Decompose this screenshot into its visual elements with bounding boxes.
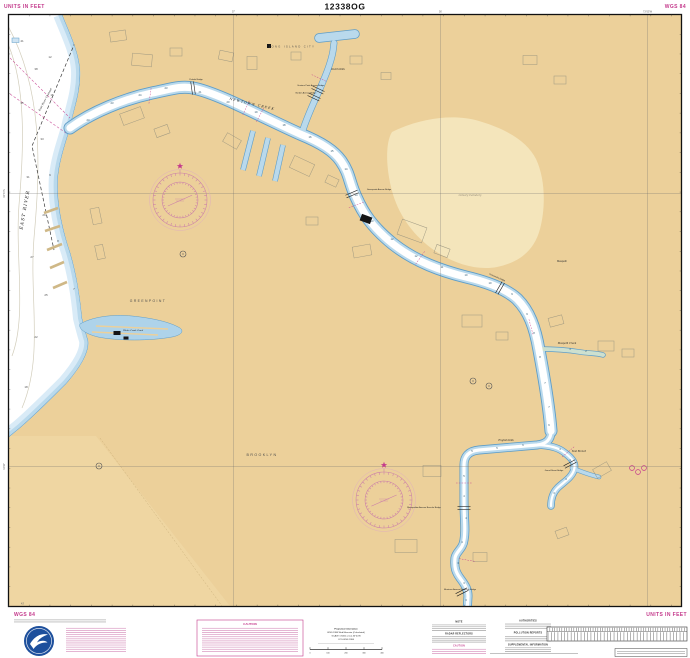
sounding: 10: [489, 281, 492, 285]
sounding: 31: [26, 175, 30, 179]
sounding: 38: [34, 67, 38, 71]
note-header: CAUTION: [453, 645, 465, 648]
map-label: Maspeth Creek: [557, 342, 577, 345]
sounding: 10: [465, 273, 468, 277]
units-note-bottom: UNITS IN FEET: [646, 612, 687, 618]
sounding: 35: [20, 101, 24, 105]
sounding: 15: [331, 149, 334, 153]
sounding: 23: [111, 101, 114, 105]
graticule-label: 56': [439, 10, 443, 13]
note-header: POLLUTION REPORTS: [514, 633, 543, 635]
scale-tick-label: 400: [380, 653, 384, 655]
nautical-chart-12338: 2323242321201918161514141312121110109988…: [0, 0, 690, 658]
datum-label-bottom: WGS 84: [14, 612, 35, 618]
units-note-top: UNITS IN FEET: [4, 4, 45, 10]
map-label: English Kills: [497, 439, 514, 442]
sounding: 24: [139, 93, 142, 97]
sounding: 18: [24, 385, 28, 389]
sounding: 12: [48, 55, 52, 59]
sounding: 12: [391, 237, 394, 241]
map-label: GREENPOINT: [130, 299, 166, 303]
map-label: Dutch Kills: [330, 68, 345, 71]
sounding: 14: [345, 167, 348, 171]
map-label: Whale Creek Canal: [123, 330, 144, 332]
sounding: 16: [309, 135, 312, 139]
sounding: 22: [34, 335, 38, 339]
scale-tick-label: 100: [326, 653, 330, 655]
notes-column-b: AUTHORITIES POLLUTION REPORTS SUPPLEMENT…: [505, 620, 551, 654]
map-label: East Branch: [571, 450, 587, 453]
nautical-chart-page: 2323242321201918161514141312121110109988…: [0, 0, 690, 658]
sounding: 18: [283, 123, 286, 127]
scale-tick-label: 0: [309, 653, 311, 655]
graticule-label: 40°44'N: [3, 189, 6, 198]
sounding: 14: [355, 193, 358, 197]
map-label: Greenpoint Avenue Bridge: [367, 188, 392, 191]
map-label: BROOKLYN: [247, 453, 278, 457]
map-label: Montrose Avenue Retractile Bridge: [444, 588, 477, 591]
note-header: AUTHORITIES: [519, 620, 537, 623]
noaa-logo: [24, 626, 54, 656]
sounding: 27: [30, 255, 34, 259]
sounding: 25: [44, 293, 48, 297]
sounding: 29: [42, 213, 46, 217]
speed-scale-ruler: [547, 627, 687, 641]
caution-title: CAUTION: [243, 622, 257, 626]
graticule-label: 73°55'W: [643, 10, 653, 13]
datum-note-lines: [14, 619, 106, 624]
map-label: Hunters Point Avenue Bridge: [298, 84, 325, 87]
top-margin: UNITS IN FEET 12338OG WGS 84: [4, 2, 686, 12]
caution-box: CAUTION: [197, 620, 303, 656]
corner-lat-label: 43': [21, 603, 25, 606]
map-label: LONG ISLAND CITY: [269, 45, 315, 49]
graticule-label: 43'30": [3, 463, 6, 470]
bottom-margin: WGS 84 UNITS IN FEET CAUTION Projection …: [14, 612, 687, 657]
map-label: Borden Avenue Bridge: [296, 92, 318, 95]
magenta-note-lines: [66, 627, 126, 653]
map-label: Grand Street Bridge: [545, 469, 564, 472]
chart-interior: 2323242321201918161514141312121110109988…: [8, 14, 682, 613]
sounding: 12: [415, 254, 418, 258]
anchorage-mark: [12, 38, 19, 43]
map-label: Calvary Cemetery: [459, 194, 482, 197]
sounding: 23: [87, 118, 90, 122]
title-block-line: SCALE 1:5000 at Lat 40°44'N: [332, 635, 361, 638]
notes-column-a: NOTE RADAR REFLECTORS CAUTION: [432, 622, 486, 655]
sounding: 33: [40, 137, 44, 141]
map-label: Maspeth: [557, 259, 568, 263]
boxed-note: [615, 649, 687, 657]
scale-tick-label: 300: [362, 653, 366, 655]
map-label: Metropolitan Avenue Bascule Bridge: [407, 506, 441, 509]
sounding: 13: [371, 219, 374, 223]
sounding: 41: [20, 39, 24, 43]
datum-label-top: WGS 84: [665, 4, 686, 10]
title-block-line: Projection Information: [334, 628, 358, 631]
title-block-line: CCS WGS 1984: [338, 639, 355, 641]
chart-number: 12338OG: [324, 2, 365, 12]
sounding: 11: [441, 265, 444, 269]
note-header: SUPPLEMENTAL INFORMATION: [508, 644, 548, 647]
note-header: RADAR REFLECTORS: [445, 633, 473, 636]
sounding: 19: [255, 110, 258, 114]
graticule-label: 57': [232, 10, 236, 13]
map-label: Pulaski Bridge: [189, 78, 203, 81]
sounding: 23: [165, 86, 168, 90]
sounding: 21: [199, 90, 202, 94]
fine-print-line: [490, 653, 578, 655]
scale-bar: 0100200300400: [309, 647, 384, 654]
title-block: Projection Information WGS 1984 Web Merc…: [309, 628, 384, 655]
scale-tick-label: 200: [344, 653, 348, 655]
title-block-line: WGS 1984 Web Mercator (Calculated): [327, 631, 365, 634]
note-header: NOTE: [455, 622, 462, 624]
sounding: 15: [50, 93, 54, 97]
